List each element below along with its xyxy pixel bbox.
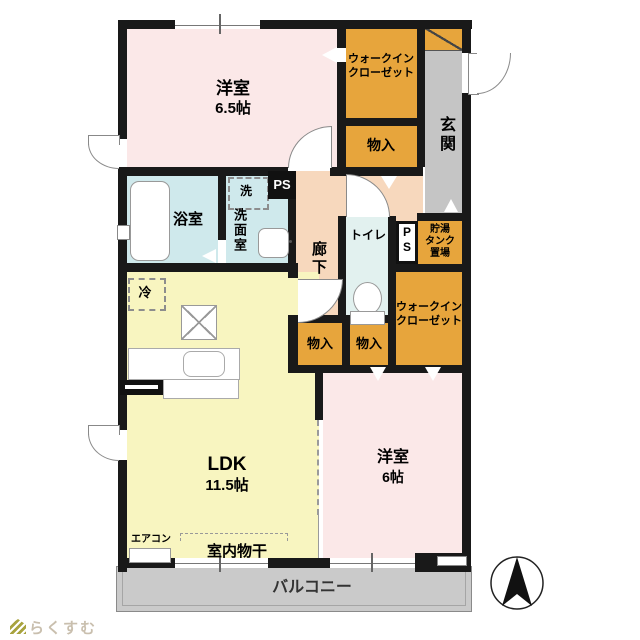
window-bed6-tick [371,553,373,572]
opening-marker-bath-door [202,249,216,263]
wall-wic-storage-divider [337,118,417,126]
wash-basin [258,228,289,258]
kitchen-counter-lower [163,379,239,399]
bedroom-6-name: 洋室 [377,448,409,468]
balcony-label: バルコニー [272,578,352,598]
wall-wic-mid-left [388,272,396,365]
wall-tank-bottom [388,264,471,272]
wall-bed65-bottom [118,167,288,176]
logo-house-icon [10,619,26,634]
shoe-cabinet-base-line [425,50,462,51]
opening-marker-entrance-step [444,199,458,212]
door-left-ldk-arc [88,433,119,461]
wall-storage-divider [342,323,350,365]
toilet-tank [350,311,385,325]
wall-left-4 [118,460,127,572]
drying-rail [180,533,288,541]
opening-marker-storage-bed6 [370,367,386,381]
wall-left-2 [118,168,127,225]
partition-thin-line [318,515,319,558]
wall-storagecol-bottom [330,167,423,176]
floor-plan: PS P S 洋室 6.5帖 ウォークイン クローゼット 物入 玄関 浴室 洗 … [0,0,640,640]
bathroom-label: 浴室 [173,211,203,230]
fridge-label: 冷 [138,285,151,301]
door-left-bed65-arc [88,143,119,169]
logo-text: らくすむ [29,617,97,638]
bathtub [130,181,170,261]
north-arrow-icon [488,554,546,612]
sliding-partition-dashed [317,420,321,515]
wall-left-1 [118,29,127,139]
drying-label: 室内物干 [207,543,267,562]
wall-wic-left-1 [337,28,346,48]
wall-bath-wash-divider [218,175,226,240]
opening-marker-hallway [381,176,397,189]
wall-right-2 [462,93,471,572]
wall-wic-left-2 [337,62,346,167]
ps-upper-label: PS [273,177,290,193]
ps-lower-label: P S [403,225,411,255]
ldk-size: 11.5帖 [205,477,248,496]
door-entrance-arc [477,53,511,94]
wall-top-1 [118,20,175,29]
window-top-tick [219,14,221,34]
storage-top-label: 物入 [367,137,395,155]
entrance-label: 玄関 [433,116,457,154]
kitchen-hatch-square [181,305,217,340]
hallway-label: 廊下 [308,241,329,277]
bedroom-6-size: 6帖 [382,469,404,487]
wall-toilet-left [338,216,346,315]
opening-marker-wic-bed6 [425,367,441,381]
bedroom-65-size: 6.5帖 [215,100,251,119]
bedroom-65-name: 洋室 [216,78,250,99]
wall-top-2 [260,20,472,29]
washer-label: 洗 [240,184,252,199]
aircon-label: エアコン [131,534,171,547]
wall-bottom-2 [268,558,330,568]
wall-entrance-left [417,20,425,167]
wic-mid-label: ウォークイン クローゼット [396,300,462,328]
storage-right-label: 物入 [356,336,382,352]
wall-ldk-bed6-stub [315,373,323,420]
shoe-cabinet [425,28,462,50]
washroom-label: 洗面室 [230,208,249,253]
window-bed6-corner [437,556,467,566]
kitchen-stove-slit [125,385,158,389]
opening-marker-wic-top-door [322,47,337,63]
ldk-name: LDK [207,453,246,477]
kitchen-sink [183,351,225,377]
window-bathroom [117,225,130,240]
tank-label: 貯湯 タンク 置場 [425,224,455,260]
toilet-label: トイレ [350,228,386,243]
wall-bath-bottom [118,263,296,272]
aircon-unit [129,548,171,563]
wash-basin-dot [289,240,292,243]
wall-right-1 [462,29,471,53]
wic-top-label: ウォークイン クローゼット [348,52,414,80]
wall-hall-ldk-1 [288,263,298,278]
window-top [175,20,260,29]
wall-entrance-bottom [417,213,471,221]
storage-left-label: 物入 [307,336,333,352]
